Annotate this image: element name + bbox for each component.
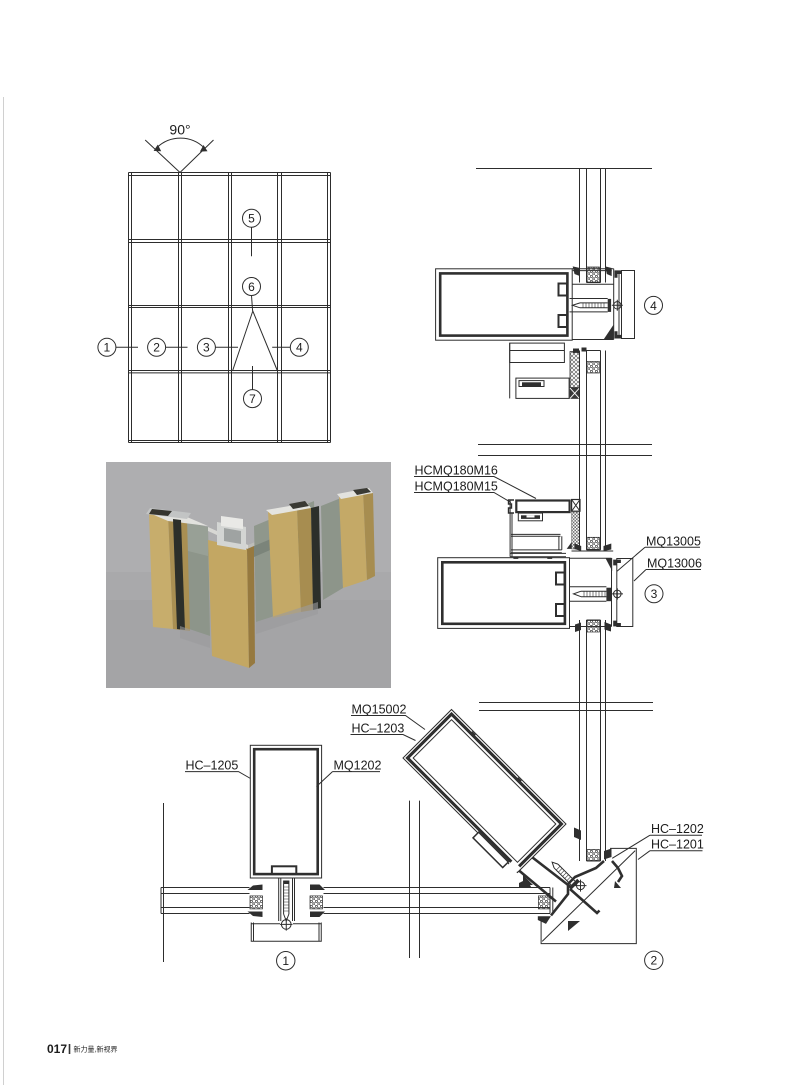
svg-text:4: 4 bbox=[296, 341, 303, 355]
svg-text:HCMQ180M15: HCMQ180M15 bbox=[415, 480, 498, 494]
svg-text:MQ13006: MQ13006 bbox=[647, 557, 702, 571]
svg-text:7: 7 bbox=[249, 392, 256, 406]
svg-text:HC–1202: HC–1202 bbox=[651, 822, 704, 836]
svg-text:5: 5 bbox=[248, 212, 255, 226]
svg-text:MQ13005: MQ13005 bbox=[646, 535, 701, 549]
svg-text:6: 6 bbox=[248, 280, 255, 294]
svg-text:HCMQ180M16: HCMQ180M16 bbox=[415, 464, 498, 478]
svg-text:4: 4 bbox=[650, 299, 657, 313]
svg-text:MQ15002: MQ15002 bbox=[352, 703, 407, 717]
svg-text:1: 1 bbox=[282, 954, 289, 968]
svg-text:HC–1205: HC–1205 bbox=[186, 759, 239, 773]
svg-text:新力量,新视界: 新力量,新视界 bbox=[74, 1045, 118, 1054]
svg-text:MQ1202: MQ1202 bbox=[334, 759, 382, 773]
svg-text:3: 3 bbox=[651, 587, 658, 601]
svg-text:HC–1201: HC–1201 bbox=[651, 838, 704, 852]
svg-text:017: 017 bbox=[47, 1042, 67, 1056]
svg-text:1: 1 bbox=[104, 341, 111, 355]
svg-text:2: 2 bbox=[650, 954, 657, 968]
svg-text:HC–1203: HC–1203 bbox=[352, 722, 405, 736]
svg-text:3: 3 bbox=[203, 341, 210, 355]
svg-text:2: 2 bbox=[153, 341, 160, 355]
svg-text:90°: 90° bbox=[169, 122, 190, 138]
